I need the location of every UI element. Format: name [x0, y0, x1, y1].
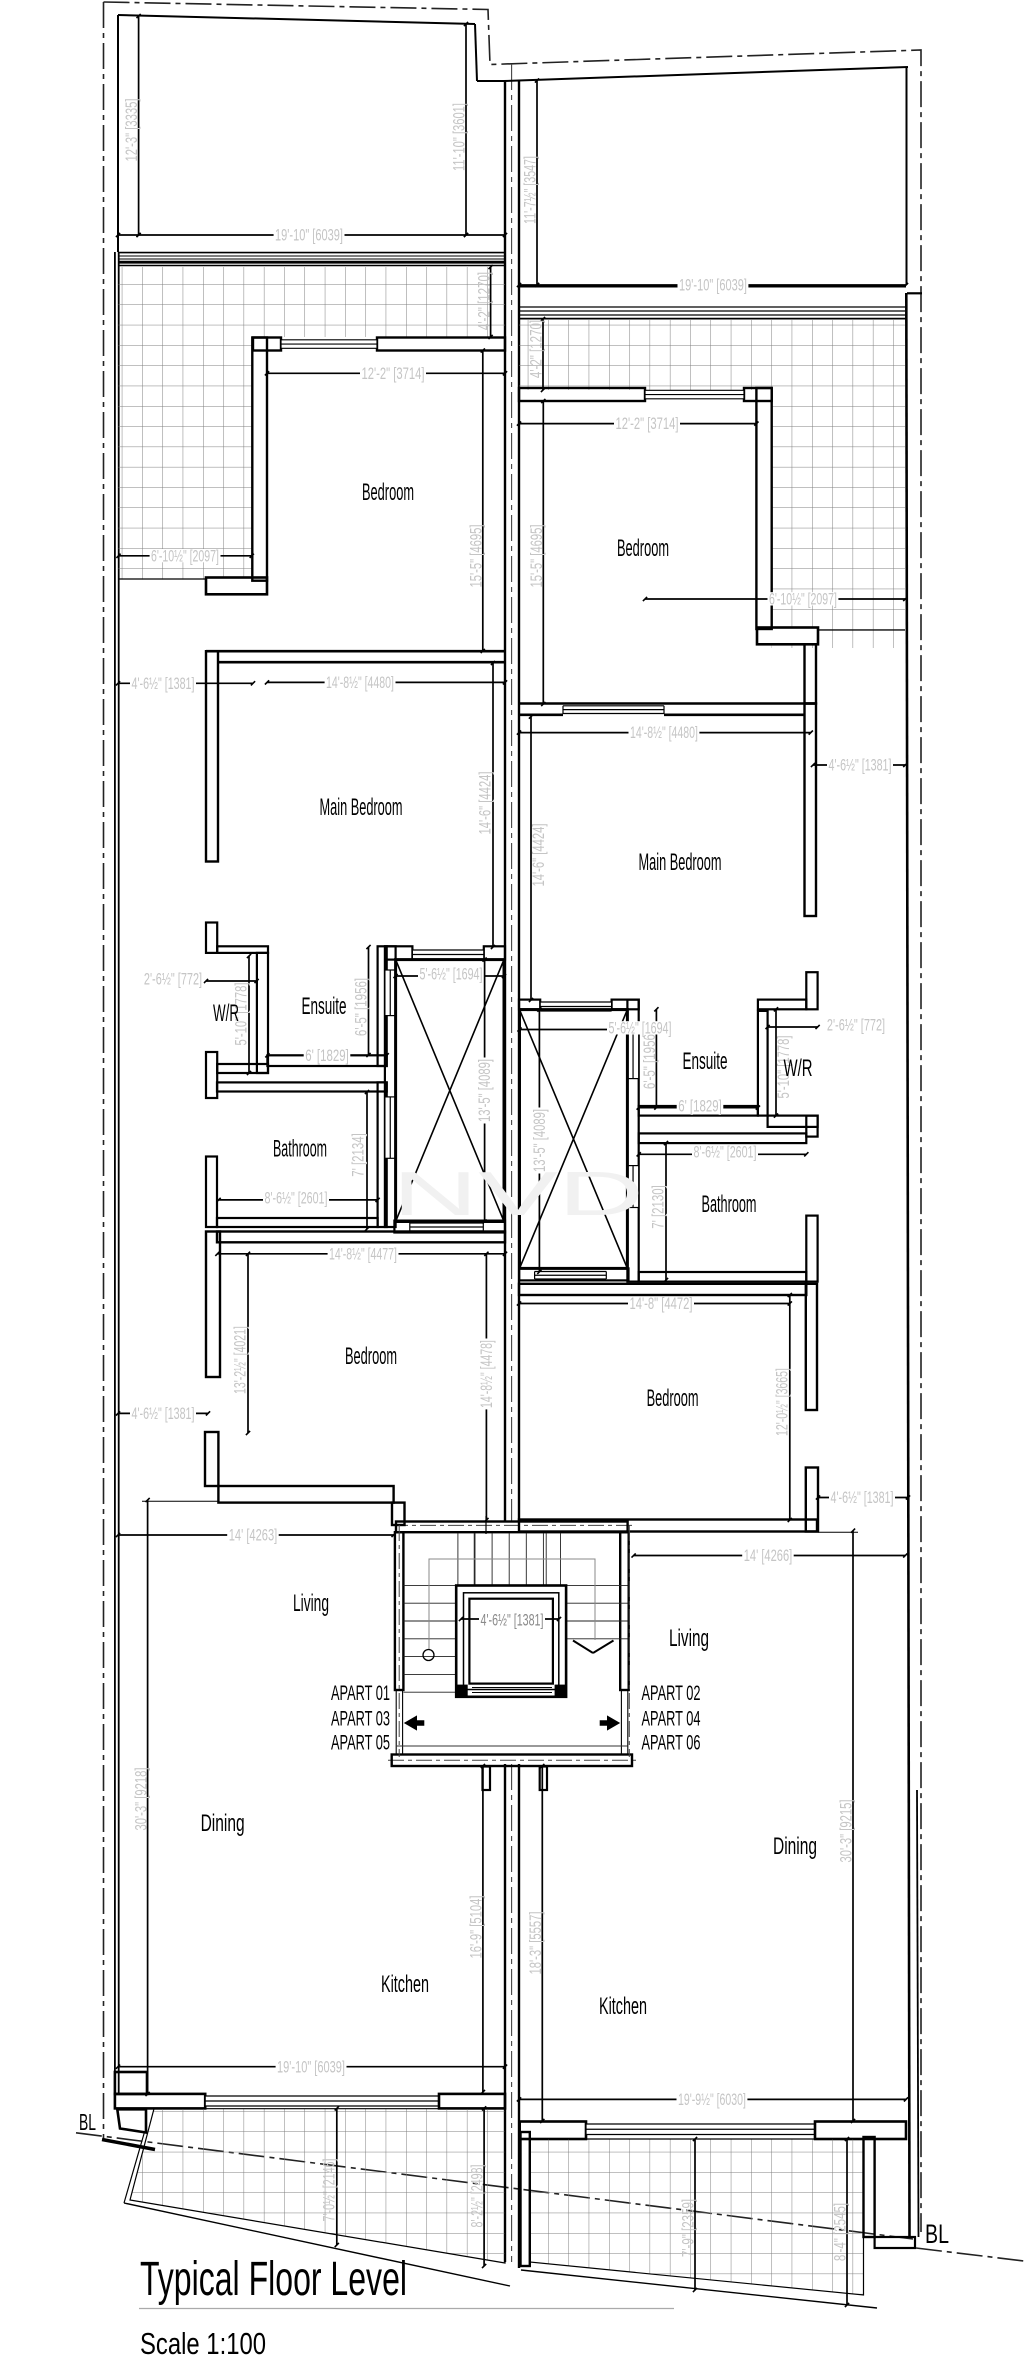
svg-text:14' [4263]: 14' [4263] — [229, 1526, 278, 1545]
svg-text:BL: BL — [79, 2109, 96, 2135]
svg-text:W/R: W/R — [784, 1055, 813, 1082]
svg-text:4'-6½" [1381]: 4'-6½" [1381] — [481, 1611, 544, 1630]
svg-text:6'-10½" [2097]: 6'-10½" [2097] — [769, 590, 837, 609]
svg-text:14'-6" [4424]: 14'-6" [4424] — [529, 824, 548, 887]
svg-text:NVD: NVD — [392, 1160, 644, 1229]
svg-text:7' [2130]: 7' [2130] — [649, 1185, 668, 1229]
svg-text:18'-3" [5557]: 18'-3" [5557] — [526, 1912, 545, 1975]
svg-text:Living: Living — [669, 1625, 709, 1652]
svg-text:6'-5" [1956]: 6'-5" [1956] — [352, 978, 371, 1036]
svg-text:14'-8½" [4480]: 14'-8½" [4480] — [630, 723, 698, 742]
svg-text:Main Bedroom: Main Bedroom — [639, 849, 722, 876]
svg-text:4'-6½" [1381]: 4'-6½" [1381] — [831, 1488, 894, 1507]
svg-text:APART 01: APART 01 — [331, 1681, 390, 1705]
svg-text:W/R: W/R — [213, 1000, 239, 1027]
svg-text:APART 02: APART 02 — [642, 1681, 701, 1705]
svg-text:6'-10½" [2097]: 6'-10½" [2097] — [151, 546, 219, 565]
svg-text:7'-9" [2359]: 7'-9" [2359] — [679, 2199, 698, 2257]
svg-text:APART 04: APART 04 — [642, 1707, 701, 1731]
svg-text:8'-2½" [2498]: 8'-2½" [2498] — [468, 2165, 487, 2228]
svg-text:16'-9" [5104]: 16'-9" [5104] — [467, 1896, 486, 1959]
svg-text:14'-8" [4472]: 14'-8" [4472] — [630, 1294, 693, 1313]
svg-text:13'-5" [4089]: 13'-5" [4089] — [475, 1059, 494, 1122]
svg-text:30'-3" [9218]: 30'-3" [9218] — [132, 1768, 151, 1831]
svg-text:11'-7½" [3547]: 11'-7½" [3547] — [521, 156, 540, 224]
svg-text:Typical Floor Level: Typical Floor Level — [140, 2253, 407, 2306]
svg-text:19'-9½" [6030]: 19'-9½" [6030] — [678, 2090, 746, 2109]
svg-text:6' [1829]: 6' [1829] — [305, 1046, 349, 1065]
svg-text:4'-6½" [1381]: 4'-6½" [1381] — [132, 674, 195, 693]
svg-text:Bathroom: Bathroom — [702, 1191, 757, 1218]
svg-text:Bedroom: Bedroom — [362, 479, 414, 506]
svg-text:12'-2" [3714]: 12'-2" [3714] — [616, 414, 679, 433]
svg-text:8'-6½" [2601]: 8'-6½" [2601] — [694, 1143, 757, 1162]
svg-text:APART 05: APART 05 — [331, 1731, 390, 1755]
svg-text:4'-6½" [1381]: 4'-6½" [1381] — [829, 756, 892, 775]
svg-text:19'-10" [6039]: 19'-10" [6039] — [679, 276, 747, 295]
svg-text:BL: BL — [925, 2219, 949, 2249]
svg-text:Kitchen: Kitchen — [599, 1993, 647, 2020]
svg-text:Bedroom: Bedroom — [345, 1343, 397, 1370]
svg-text:12'-2" [3714]: 12'-2" [3714] — [362, 364, 425, 383]
svg-text:Bedroom: Bedroom — [647, 1385, 699, 1412]
svg-text:Main Bedroom: Main Bedroom — [320, 794, 403, 821]
svg-text:13'-2½" [4021]: 13'-2½" [4021] — [231, 1326, 250, 1394]
svg-text:15'-5" [4695]: 15'-5" [4695] — [527, 525, 546, 588]
svg-text:30'-3" [9215]: 30'-3" [9215] — [837, 1800, 856, 1863]
svg-text:15'-5" [4695]: 15'-5" [4695] — [467, 525, 486, 588]
svg-text:7' [2134]: 7' [2134] — [349, 1133, 368, 1177]
svg-text:APART 06: APART 06 — [642, 1731, 701, 1755]
svg-text:8'-6½" [2601]: 8'-6½" [2601] — [265, 1189, 328, 1208]
svg-text:19'-10" [6039]: 19'-10" [6039] — [277, 2057, 345, 2076]
svg-text:4'-2" [1270]: 4'-2" [1270] — [527, 320, 546, 378]
svg-text:2'-6½" [772]: 2'-6½" [772] — [144, 970, 202, 989]
svg-text:6'-5" [1956]: 6'-5" [1956] — [640, 1031, 659, 1089]
svg-text:Living: Living — [293, 1590, 329, 1617]
svg-text:14'-8½" [4480]: 14'-8½" [4480] — [326, 673, 394, 692]
svg-text:Ensuite: Ensuite — [302, 993, 347, 1020]
svg-text:14'-8½" [4477]: 14'-8½" [4477] — [329, 1244, 397, 1263]
svg-text:5'-6½" [1694]: 5'-6½" [1694] — [609, 1019, 672, 1038]
svg-text:6' [1829]: 6' [1829] — [678, 1097, 722, 1116]
svg-text:12'-3" [3335]: 12'-3" [3335] — [122, 99, 141, 162]
svg-text:14' [4266]: 14' [4266] — [744, 1546, 793, 1565]
svg-text:5'-6½" [1694]: 5'-6½" [1694] — [420, 965, 483, 984]
svg-text:Dining: Dining — [773, 1833, 817, 1860]
svg-text:Bathroom: Bathroom — [273, 1136, 327, 1163]
svg-text:19'-10" [6039]: 19'-10" [6039] — [275, 226, 343, 245]
svg-text:4'-2" [1270]: 4'-2" [1270] — [475, 272, 494, 330]
svg-text:8'-4" [2545]: 8'-4" [2545] — [831, 2203, 850, 2261]
svg-text:Scale 1:100: Scale 1:100 — [140, 2326, 266, 2361]
svg-text:Kitchen: Kitchen — [381, 1971, 429, 1998]
svg-text:4'-6½" [1381]: 4'-6½" [1381] — [132, 1404, 195, 1423]
svg-text:14'-6" [4424]: 14'-6" [4424] — [476, 772, 495, 835]
svg-text:11'-10" [3601]: 11'-10" [3601] — [450, 103, 469, 171]
svg-text:7'-0½" [2146]: 7'-0½" [2146] — [320, 2159, 339, 2222]
svg-text:Bedroom: Bedroom — [617, 535, 669, 562]
svg-text:APART 03: APART 03 — [331, 1707, 390, 1731]
svg-text:Ensuite: Ensuite — [683, 1048, 728, 1075]
svg-text:2'-6½" [772]: 2'-6½" [772] — [827, 1016, 885, 1035]
svg-text:14'-8½" [4478]: 14'-8½" [4478] — [477, 1340, 496, 1408]
svg-text:Dining: Dining — [201, 1810, 245, 1837]
svg-text:12'-0½" [3665]: 12'-0½" [3665] — [773, 1368, 792, 1436]
